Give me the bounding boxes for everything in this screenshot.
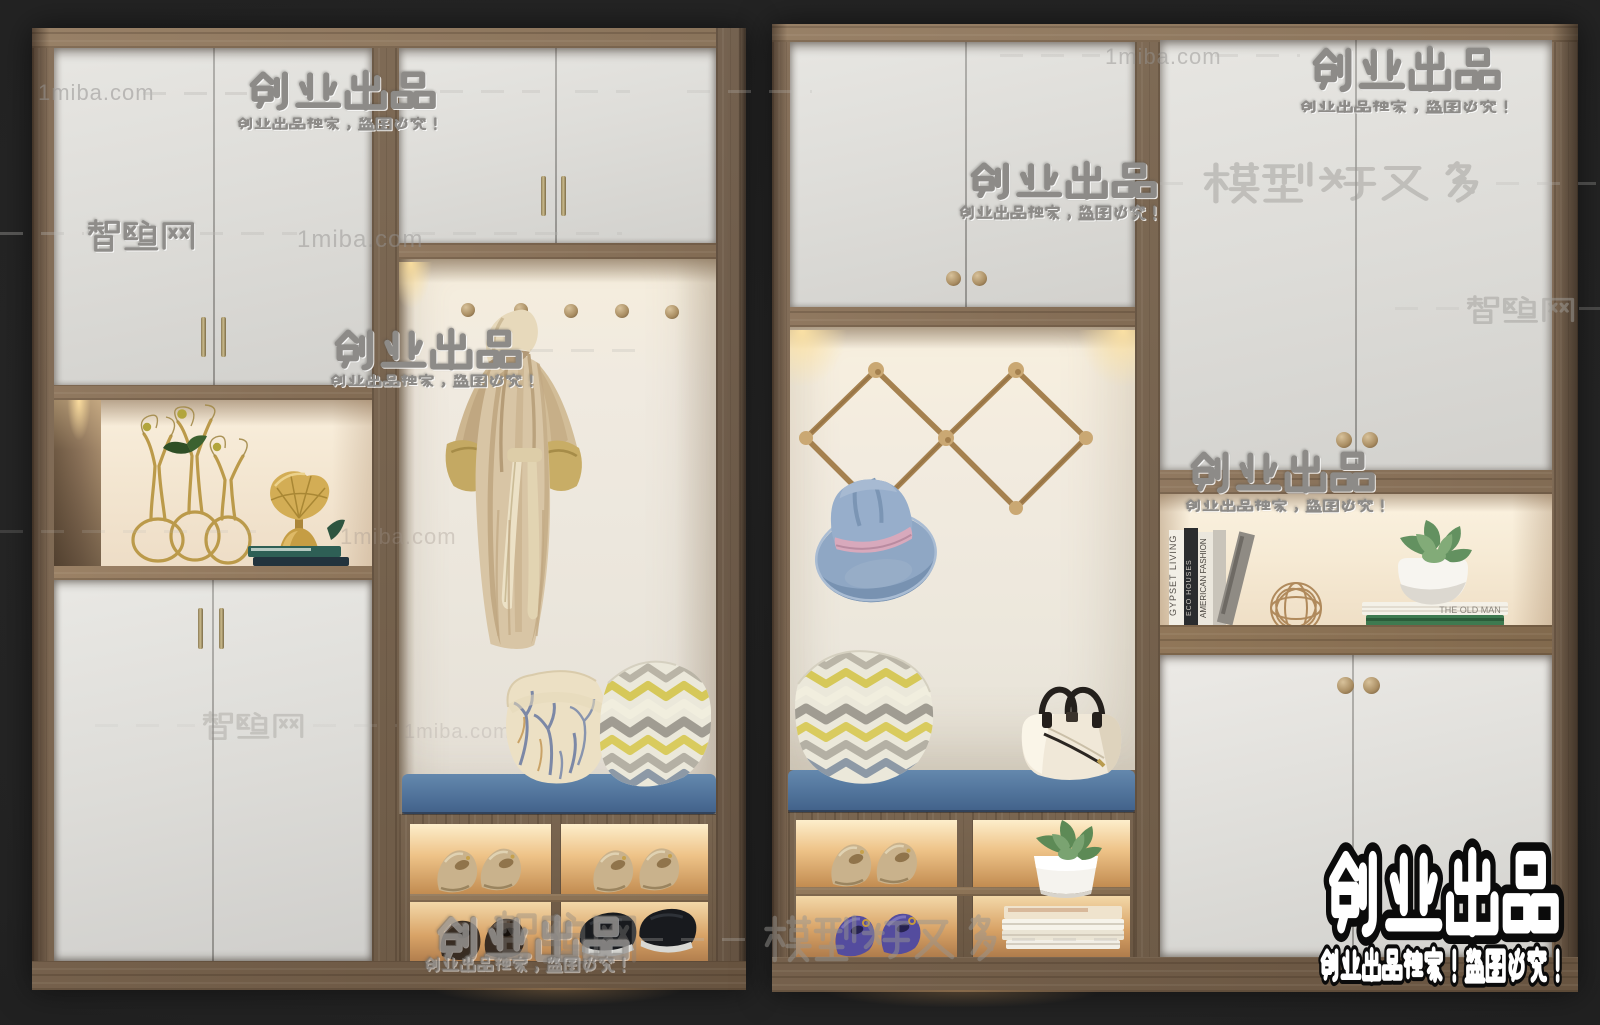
svg-text:ECO HOUSES: ECO HOUSES <box>1186 559 1193 616</box>
svg-text:THE OLD MAN: THE OLD MAN <box>1439 605 1501 615</box>
svg-text:GYPSET LIVING: GYPSET LIVING <box>1168 535 1178 616</box>
svg-text:AMERICAN FASHION: AMERICAN FASHION <box>1199 538 1208 618</box>
